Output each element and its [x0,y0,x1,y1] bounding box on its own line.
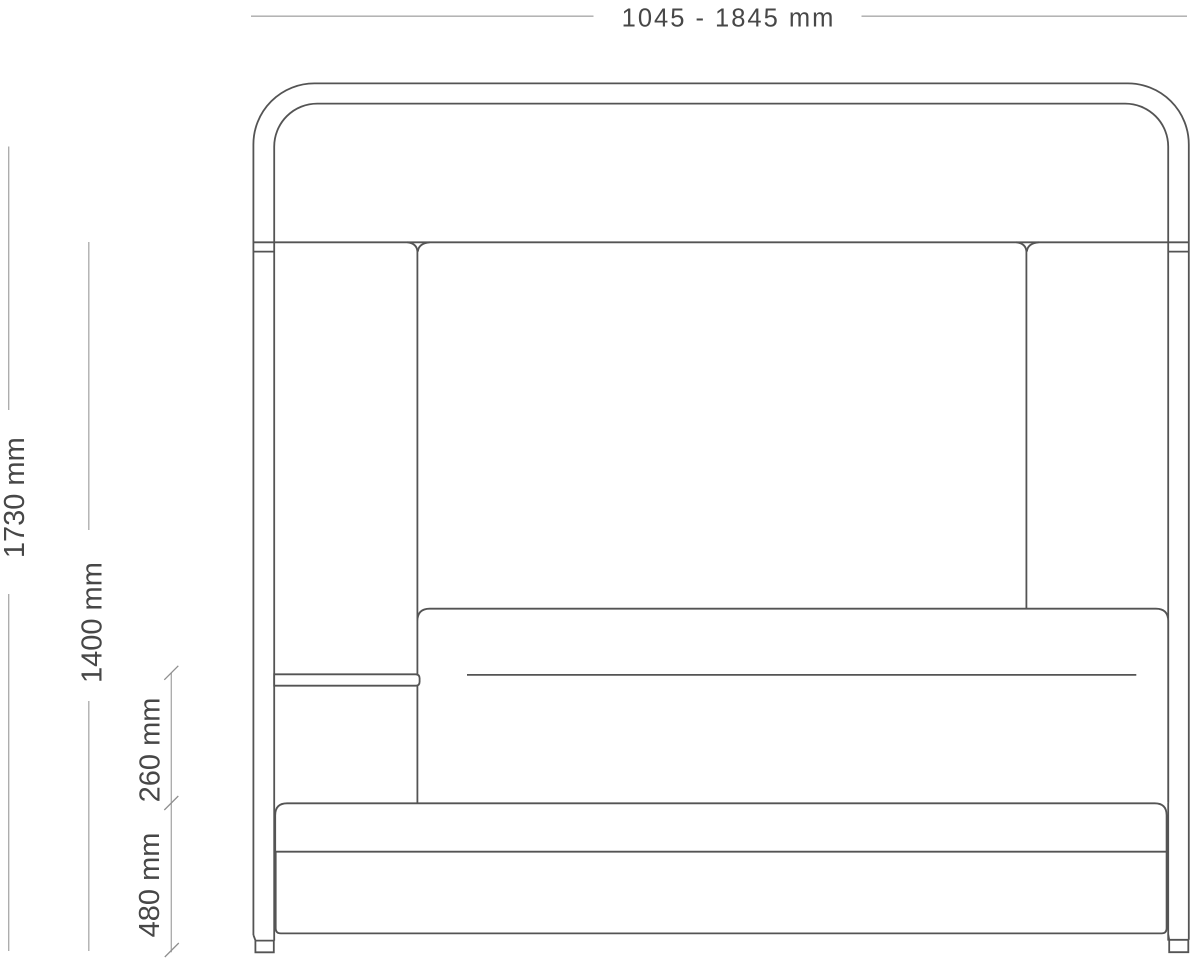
svg-text:260 mm: 260 mm [135,698,167,803]
svg-text:480 mm: 480 mm [134,833,166,938]
svg-text:1045 - 1845 mm: 1045 - 1845 mm [622,5,836,33]
svg-text:1730 mm: 1730 mm [0,437,31,558]
svg-text:1400 mm: 1400 mm [76,562,108,683]
